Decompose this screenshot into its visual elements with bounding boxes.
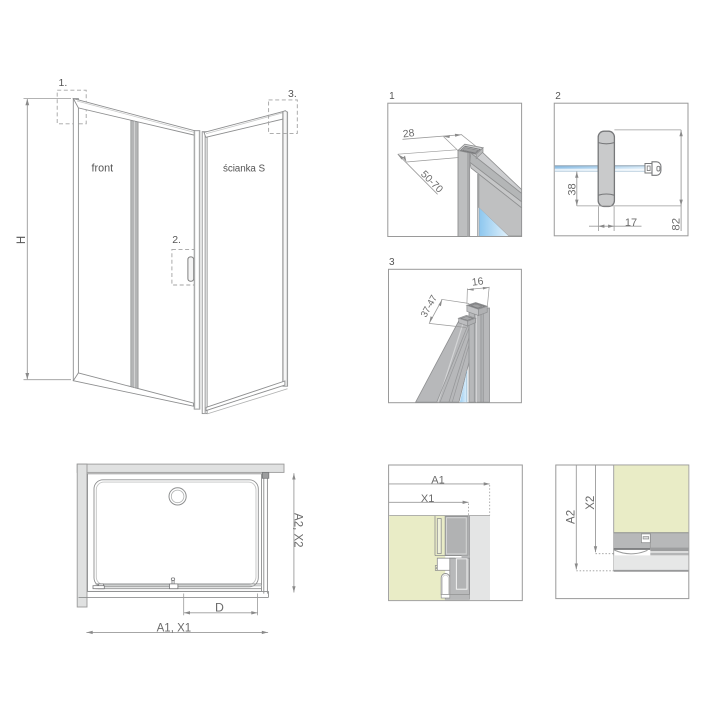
svg-text:16: 16: [471, 275, 484, 288]
svg-text:38: 38: [566, 183, 578, 195]
svg-text:17: 17: [625, 217, 637, 229]
svg-text:X1: X1: [421, 493, 434, 505]
svg-text:A1, X1: A1, X1: [157, 623, 192, 635]
svg-text:3.: 3.: [288, 88, 297, 100]
svg-text:1: 1: [389, 91, 395, 102]
svg-text:2: 2: [555, 91, 561, 102]
svg-text:A2, X2: A2, X2: [292, 513, 304, 548]
svg-text:ścianka S: ścianka S: [223, 164, 265, 175]
svg-text:1.: 1.: [59, 77, 68, 89]
svg-text:2.: 2.: [172, 234, 181, 246]
svg-text:H: H: [16, 236, 28, 244]
svg-text:28: 28: [402, 127, 415, 140]
svg-text:3: 3: [389, 257, 395, 268]
svg-text:X2: X2: [585, 496, 597, 510]
svg-text:A1: A1: [431, 474, 444, 486]
svg-text:A2: A2: [566, 510, 578, 524]
svg-text:82: 82: [670, 218, 682, 231]
svg-text:front: front: [91, 163, 113, 175]
svg-text:D: D: [215, 601, 224, 615]
